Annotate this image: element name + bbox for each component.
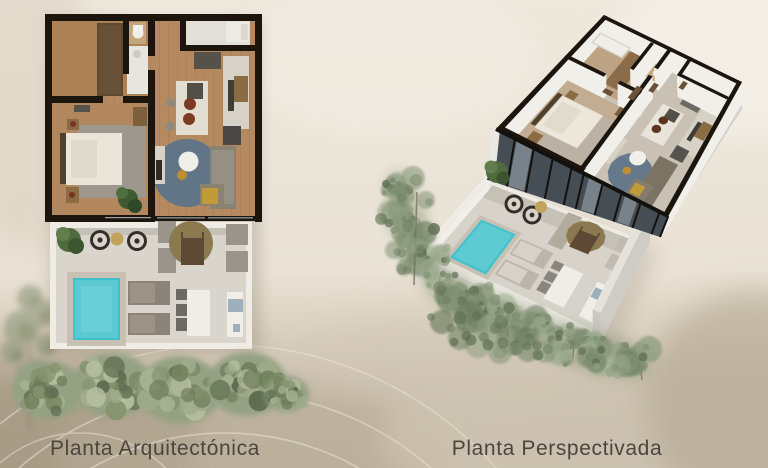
- svg-text:Planta Perspectivada: Planta Perspectivada: [452, 437, 662, 460]
- svg-text:Planta Arquitectónica: Planta Arquitectónica: [50, 437, 260, 460]
